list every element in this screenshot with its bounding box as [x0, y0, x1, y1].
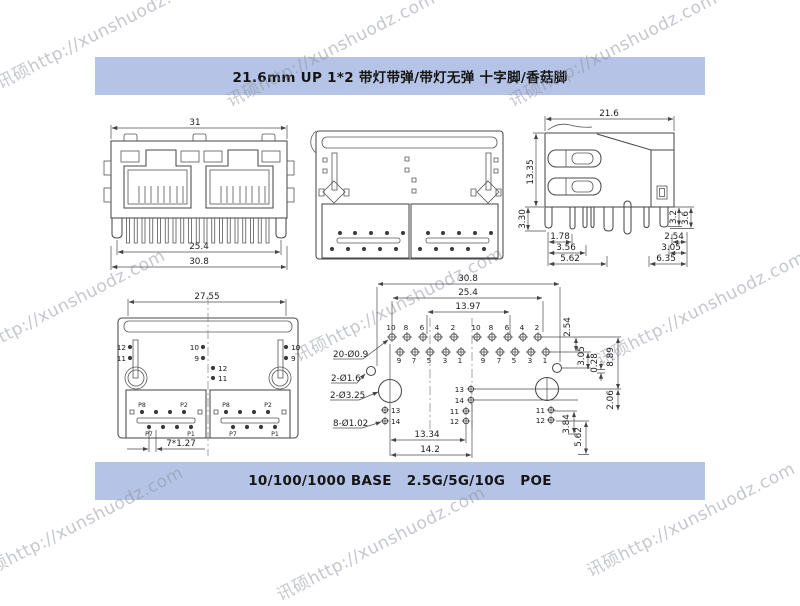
pin-number: 9: [481, 356, 486, 365]
pin-label: 12: [218, 364, 227, 373]
pin-number: 14: [391, 417, 401, 426]
side-dim-7: 3.2: [669, 210, 679, 224]
contact-pads-right: P8 P2 P7 P1: [214, 402, 286, 438]
emi-diamonds: [319, 181, 501, 203]
pin-label: 10: [291, 343, 301, 352]
pin-number: 6: [505, 323, 510, 332]
side-dim-pin-length: 3.30: [518, 209, 528, 229]
fp-dim-b2: 14.2: [420, 445, 440, 455]
pin-number: 5: [427, 356, 432, 365]
bottom-dim-pitch: 7*1.27: [166, 439, 196, 449]
pin-number: 2: [451, 323, 456, 332]
pad-label: P2: [264, 402, 272, 409]
pad-label: P1: [271, 431, 279, 438]
pin-label: 9: [194, 354, 199, 363]
pin-number: 4: [520, 323, 525, 332]
pin-number: 1: [543, 356, 548, 365]
side-dim-2: 3.56: [556, 243, 576, 253]
pin-number: 12: [450, 417, 459, 426]
contact-pads-left: P8 P2 P7 P1: [130, 402, 202, 438]
fp-dim-v7: 5.62: [574, 427, 584, 447]
pin-label: 9: [291, 354, 296, 363]
pad-label: P1: [187, 431, 195, 438]
pin-number: 7: [497, 356, 502, 365]
fp-dim-v4: 8.89: [606, 347, 616, 367]
pin-number: 11: [450, 407, 459, 416]
side-dim-4: 2.54: [664, 232, 684, 242]
fp-dim-v2: 3.05: [577, 346, 587, 366]
pin-label: 12: [117, 343, 126, 352]
fp-callout-leds: 2-Ø1.6: [331, 373, 361, 384]
fp-callout-pads: 20-Ø0.9: [333, 349, 368, 360]
front-dim-body: 30.8: [189, 257, 209, 267]
fp-dim-v3: 0.28: [590, 353, 600, 373]
side-dim-6: 6.35: [656, 254, 676, 264]
pin-label: 11: [218, 374, 227, 383]
led-holes: [381, 385, 555, 425]
pin-label: 11: [117, 354, 126, 363]
fp-dim-v1: 2.54: [563, 317, 573, 337]
bottom-dim-width: 27.55: [194, 292, 219, 302]
pin-number: 10: [471, 323, 481, 332]
pin-number: 13: [391, 406, 401, 415]
drawing-canvas: 31 25.4 30.8: [0, 0, 800, 565]
front-view: 31 25.4 30.8: [104, 118, 294, 270]
pin-number: 1: [458, 356, 463, 365]
pin-number: 12: [536, 416, 545, 425]
rear-view: [311, 131, 503, 259]
fp-dim-v5: 2.06: [606, 390, 616, 410]
pin-number: 3: [528, 356, 533, 365]
side-dim-8: 3.6: [681, 211, 691, 225]
front-dim-width: 31: [189, 118, 200, 128]
footprint-view: 30.8 25.4 13.97 10 8 6 4 2 10 8 6 4 2 9 …: [330, 274, 621, 458]
pin-number: 13: [455, 385, 465, 394]
rj45-port-right: [206, 150, 273, 208]
pin-label: 10: [190, 343, 200, 352]
pin-number: 9: [397, 356, 402, 365]
pin-number: 3: [443, 356, 448, 365]
pin-number: 8: [489, 323, 494, 332]
pad-label: P8: [138, 402, 146, 409]
pin-number: 8: [404, 323, 409, 332]
pad-label: P2: [180, 402, 188, 409]
pin-number: 6: [420, 323, 425, 332]
pin-number: 7: [412, 356, 417, 365]
fp-dim-w3: 13.97: [455, 302, 480, 312]
pin-number: 4: [435, 323, 440, 332]
front-dim-pins: 25.4: [189, 242, 209, 252]
side-dim-width: 21.6: [599, 109, 619, 119]
fp-dim-v6: 3.84: [562, 414, 572, 434]
page: { "watermark": { "text": "讯硕http://xunsh…: [0, 0, 800, 565]
pin-number: 2: [535, 323, 540, 332]
side-dim-height: 13.35: [526, 159, 536, 184]
side-dim-1: 1.78: [550, 232, 570, 242]
side-dim-5: 3.05: [661, 243, 681, 253]
side-view: 21.6 13.35 3.30: [518, 109, 694, 267]
led-windows: [121, 151, 280, 162]
pad-label: P7: [229, 431, 237, 438]
pad-label: P8: [222, 402, 230, 409]
latch-slots: [548, 150, 601, 195]
side-pins: [545, 201, 668, 234]
fp-dim-b1: 13.34: [414, 430, 440, 440]
pin-number: 10: [386, 323, 396, 332]
pin-comb: [127, 218, 270, 243]
fp-dim-w1: 30.8: [458, 274, 478, 284]
pin-number: 11: [536, 406, 545, 415]
bottom-view: 27.55 12 11 10 9 12 11 10 9 P8 P2: [117, 292, 301, 456]
fp-dim-w2: 25.4: [458, 288, 478, 298]
pin-number: 5: [512, 356, 517, 365]
side-dim-3: 5.62: [560, 254, 580, 264]
pin-number: 14: [455, 396, 465, 405]
signal-pads: [387, 332, 551, 357]
